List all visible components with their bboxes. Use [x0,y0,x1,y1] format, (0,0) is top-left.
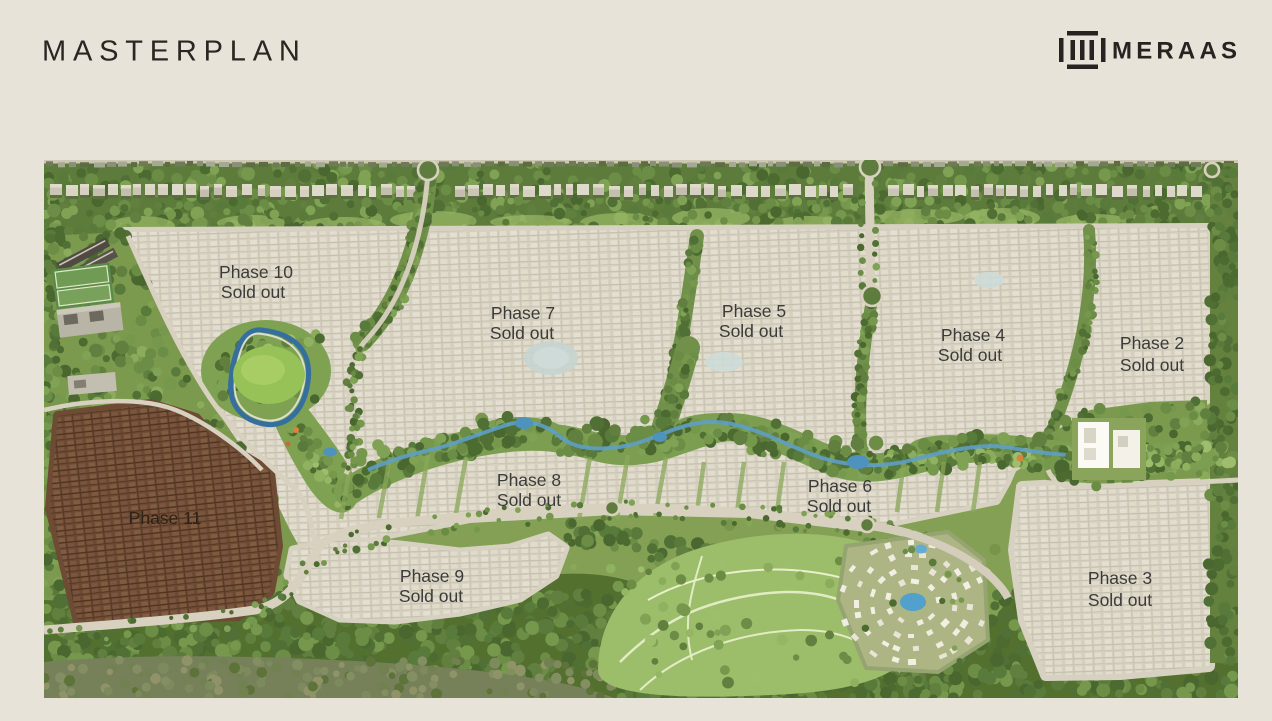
svg-text:Sold out: Sold out [807,496,871,516]
svg-text:MERAAS: MERAAS [1112,38,1241,65]
svg-text:MASTERPLAN: MASTERPLAN [42,36,307,68]
svg-text:Phase 9: Phase 9 [400,566,464,586]
svg-text:Phase 11: Phase 11 [129,508,202,528]
svg-text:Phase 8: Phase 8 [497,470,561,490]
svg-text:Sold out: Sold out [221,282,285,302]
svg-text:Sold out: Sold out [1088,590,1152,610]
svg-text:Sold out: Sold out [497,490,561,510]
svg-text:Phase 4: Phase 4 [941,325,1005,345]
svg-text:Phase 7: Phase 7 [491,303,555,323]
svg-text:Sold out: Sold out [938,345,1002,365]
svg-text:Sold out: Sold out [490,323,554,343]
svg-text:Sold out: Sold out [1120,355,1184,375]
svg-text:Phase 5: Phase 5 [722,301,786,321]
svg-text:Phase 6: Phase 6 [808,476,872,496]
svg-text:Phase 10: Phase 10 [219,262,293,282]
svg-text:Phase 2: Phase 2 [1120,333,1184,353]
svg-text:Phase 3: Phase 3 [1088,568,1152,588]
svg-text:Sold out: Sold out [719,321,783,341]
svg-text:Sold out: Sold out [399,586,463,606]
